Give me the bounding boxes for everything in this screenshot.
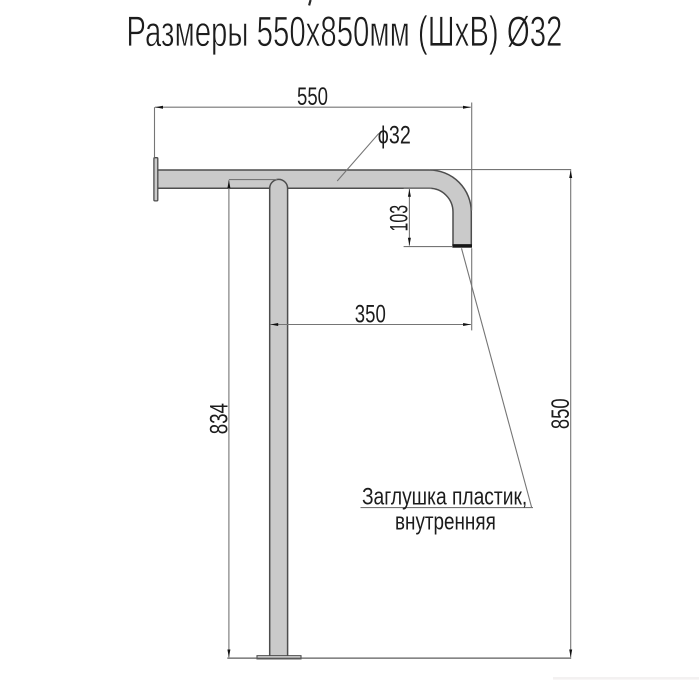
svg-text:Заглушка пластик,: Заглушка пластик, <box>362 483 527 510</box>
svg-text:103: 103 <box>386 205 414 232</box>
svg-text:350: 350 <box>355 300 386 328</box>
svg-text:ϕ32: ϕ32 <box>378 122 411 150</box>
svg-text:Размеры 550х850мм (ШхВ) Ø32: Размеры 550х850мм (ШхВ) Ø32 <box>126 8 562 56</box>
svg-text:внутренняя: внутренняя <box>395 509 496 536</box>
svg-text:550: 550 <box>297 83 328 111</box>
svg-text:834: 834 <box>206 403 234 434</box>
svg-text:850: 850 <box>547 398 575 429</box>
